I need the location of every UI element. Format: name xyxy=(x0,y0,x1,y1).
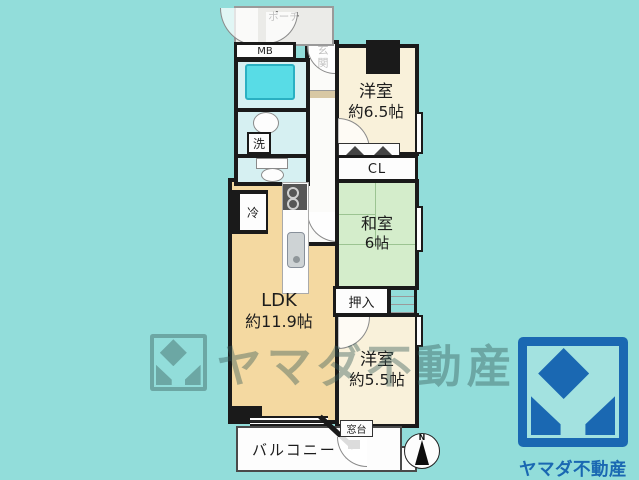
logo-wing-right-icon xyxy=(185,365,201,386)
closet-cl-label: CL xyxy=(368,162,386,177)
logo-wing-right-icon xyxy=(585,396,615,435)
window-sill-label: 窓台 xyxy=(347,421,367,436)
folding-door-triangle-icon xyxy=(346,146,364,155)
stove-burner xyxy=(287,198,299,210)
meter-box-label: MB xyxy=(257,46,273,57)
brand-logo-text: ヤマダ不動産 xyxy=(519,456,627,480)
porch-door-arc-left xyxy=(220,8,258,46)
entrance-step xyxy=(309,90,335,98)
balcony-label: バルコニー xyxy=(252,439,337,460)
window-sill-box: 窓台 xyxy=(340,420,373,437)
logo-diamond-icon xyxy=(160,339,187,366)
logo-wing-left-icon xyxy=(531,396,561,435)
compass: N xyxy=(404,433,440,469)
watermark: ヤマダ不動産 xyxy=(150,330,517,395)
floor-plan-canvas: 玄関 ポーチ MB 洗 冷 洋室 約6.5帖 xyxy=(0,0,639,480)
sliding-window-ldk xyxy=(250,416,328,426)
room-ldk-label: LDK 約11.9帖 xyxy=(224,290,334,331)
pillar-top-right xyxy=(366,40,400,74)
room-western-1-label: 洋室 約6.5帖 xyxy=(337,82,415,122)
logo-wing-left-icon xyxy=(156,365,172,386)
brand-logo: ヤマダ不動産 xyxy=(517,337,629,480)
stove xyxy=(283,184,307,210)
washbasin xyxy=(253,112,279,134)
room-japanese-label: 和室 6帖 xyxy=(335,214,419,252)
toilet-bowl xyxy=(261,168,284,182)
room-ldk-name: LDK xyxy=(224,290,334,312)
compass-needle-icon xyxy=(415,440,429,465)
yamada-logo-mark-icon xyxy=(518,337,628,447)
yamada-logo-mark-icon xyxy=(150,334,207,391)
washroom-label-box: 洗 xyxy=(247,132,271,154)
kitchen-sink xyxy=(287,232,305,268)
bathtub xyxy=(245,64,295,100)
room-western-1-name: 洋室 xyxy=(337,82,415,103)
window-western-1 xyxy=(415,112,423,154)
room-japanese-size: 6帖 xyxy=(335,234,419,252)
closet-oshiire-label: 押入 xyxy=(348,292,374,311)
washroom-label: 洗 xyxy=(253,135,265,152)
folding-door-triangle-icon xyxy=(374,146,392,155)
room-ldk-size: 約11.9帖 xyxy=(224,312,334,332)
fridge-space: 冷 xyxy=(240,194,266,230)
watermark-text: ヤマダ不動産 xyxy=(217,330,517,395)
room-western-1-size: 約6.5帖 xyxy=(337,103,415,122)
room-japanese-name: 和室 xyxy=(335,214,419,234)
sink-faucet xyxy=(293,256,300,263)
logo-diamond-icon xyxy=(538,348,589,399)
fridge-label: 冷 xyxy=(247,204,259,221)
balcony: バルコニー xyxy=(236,426,402,472)
